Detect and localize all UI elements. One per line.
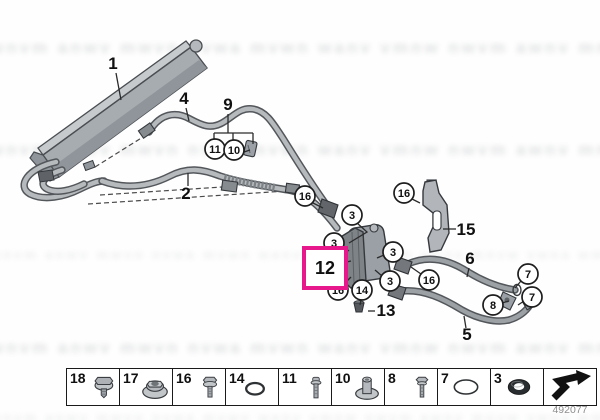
part-label-15[interactable]: 15 (457, 220, 476, 239)
seal-ring-icon (503, 373, 535, 401)
part-label-12: 12 (315, 258, 335, 279)
legend-number: 11 (282, 370, 297, 386)
svg-text:3: 3 (349, 210, 355, 222)
legend-cell-14[interactable]: 14 (226, 369, 279, 405)
legend-cell-3[interactable]: 3 (491, 369, 544, 405)
svg-text:16: 16 (398, 188, 410, 200)
hex-bolt-icon (408, 373, 436, 403)
svg-text:8: 8 (490, 300, 496, 312)
round-head-bolt-icon (302, 373, 330, 403)
svg-text:16: 16 (423, 275, 435, 287)
part-label-5[interactable]: 5 (462, 325, 471, 344)
legend-number: 18 (70, 370, 86, 386)
svg-text:3: 3 (390, 247, 396, 259)
svg-text:7: 7 (529, 292, 535, 304)
legend-number: 7 (441, 370, 449, 386)
callout-7[interactable]: 7 (515, 264, 538, 288)
svg-text:7: 7 (525, 269, 531, 281)
legend-cell-11[interactable]: 11 (279, 369, 332, 405)
legend-cell-continue[interactable] (544, 369, 596, 405)
part-label-1[interactable]: 1 (108, 54, 117, 73)
callout-16[interactable]: 16 (411, 267, 439, 290)
legend-number: 10 (335, 370, 351, 386)
legend-cell-8[interactable]: 8 (385, 369, 438, 405)
hex-bolt-washer-icon (88, 373, 118, 403)
mounting-bracket (423, 180, 449, 252)
legend-cell-16[interactable]: 16 (173, 369, 226, 405)
legend-number: 17 (123, 370, 139, 386)
svg-text:14: 14 (356, 285, 369, 297)
pipe-fitting (221, 180, 237, 192)
svg-text:11: 11 (209, 144, 221, 156)
highlighted-part-12[interactable]: 12 (302, 246, 348, 290)
parts-diagram-page: wnvm anwv mwvn nvwa mvwn wanv vmnw nwvm … (0, 0, 600, 420)
loop-fitting (38, 170, 54, 182)
part-label-13[interactable]: 13 (377, 301, 396, 320)
svg-text:16: 16 (299, 191, 311, 203)
pipe-clamp (243, 140, 257, 157)
legend-cell-17[interactable]: 17 (120, 369, 173, 405)
svg-text:10: 10 (228, 145, 240, 157)
fastener-legend-row: 18 17 16 (66, 368, 597, 406)
diagram-doc-number: 492077 (541, 404, 599, 416)
part-label-4[interactable]: 4 (179, 89, 189, 108)
part-label-2[interactable]: 2 (181, 184, 190, 203)
flange-nut-icon (139, 373, 171, 403)
legend-number: 3 (494, 370, 502, 386)
hex-flange-bolt-icon (196, 373, 224, 403)
callout-16[interactable]: 16 (394, 183, 420, 203)
part-label-9[interactable]: 9 (223, 95, 232, 114)
o-ring-icon (240, 373, 270, 401)
large-o-ring-icon (450, 373, 482, 401)
pipe-end-fitting (318, 199, 338, 218)
svg-text:3: 3 (387, 276, 393, 288)
legend-cell-7[interactable]: 7 (438, 369, 491, 405)
flanged-sleeve-icon (351, 373, 383, 403)
legend-number: 8 (388, 370, 396, 386)
exchanger-stub (370, 224, 378, 232)
hose-collar (83, 160, 95, 170)
drain-plug (354, 301, 364, 312)
legend-number: 16 (176, 370, 192, 386)
part-label-6[interactable]: 6 (465, 249, 474, 268)
legend-cell-18[interactable]: 18 (67, 369, 120, 405)
radiator-end-cap (190, 40, 202, 52)
legend-cell-10[interactable]: 10 (332, 369, 385, 405)
callout-11[interactable]: 11 (205, 139, 225, 159)
continuation-arrow-icon (547, 370, 593, 404)
callout-3[interactable]: 3 (375, 270, 400, 291)
diagram-canvas: 1 4 9 2 15 6 5 13 11 (0, 0, 600, 420)
